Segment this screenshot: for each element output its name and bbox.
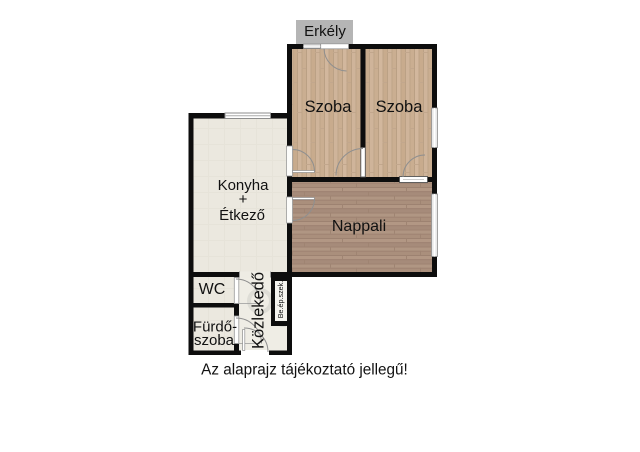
svg-text:Szoba: Szoba bbox=[305, 98, 353, 116]
svg-text:+: + bbox=[239, 191, 248, 208]
svg-text:szoba: szoba bbox=[194, 332, 235, 349]
svg-text:Erkély: Erkély bbox=[304, 23, 346, 40]
svg-text:Étkező: Étkező bbox=[219, 207, 265, 224]
svg-text:Nappali: Nappali bbox=[332, 218, 386, 235]
svg-text:Szoba: Szoba bbox=[376, 98, 424, 116]
svg-text:Az alaprajz tájékoztató jelleg: Az alaprajz tájékoztató jellegű! bbox=[201, 362, 408, 379]
svg-text:Közlekedő: Közlekedő bbox=[250, 272, 268, 349]
svg-text:WC: WC bbox=[199, 281, 226, 298]
svg-text:Be.ép.szek.: Be.ép.szek. bbox=[276, 281, 285, 319]
